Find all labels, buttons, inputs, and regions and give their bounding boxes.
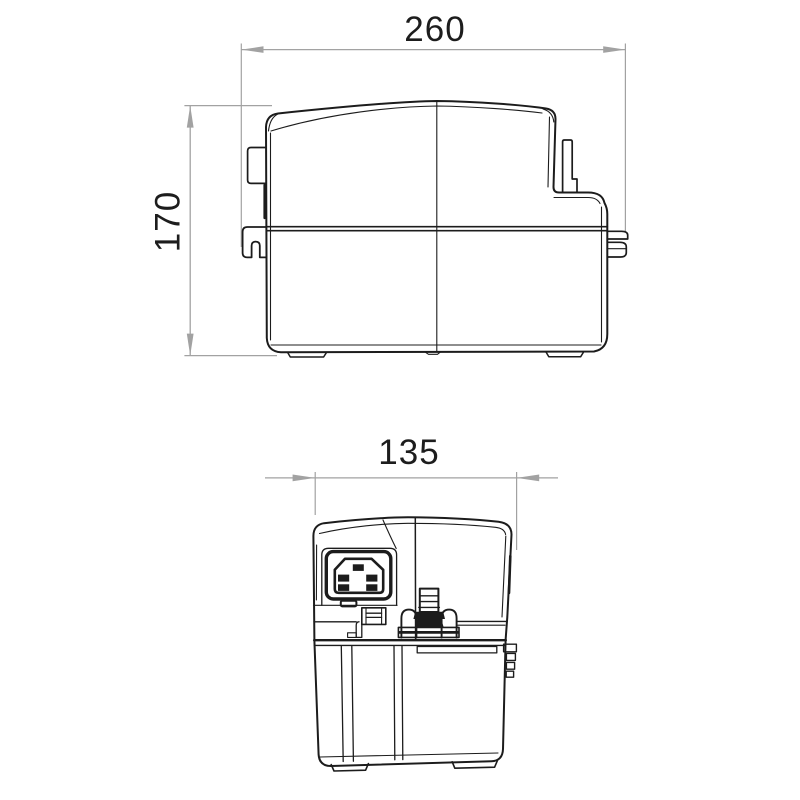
shelf-inner-line	[554, 198, 600, 204]
arrow-right-icon	[293, 475, 316, 482]
power-inlet-panel	[314, 548, 397, 606]
left-hook-clip	[243, 227, 266, 257]
right-clip-upper	[607, 231, 627, 239]
latch-rib-lines	[366, 613, 382, 617]
iec-pin	[366, 584, 377, 591]
clip-tooth	[506, 662, 514, 669]
front-latch	[348, 608, 386, 638]
spout-rib-lines	[419, 596, 440, 608]
arrow-left-icon	[517, 475, 540, 482]
arrow-right-icon	[603, 46, 625, 53]
technical-drawing-canvas: 260 170	[0, 0, 800, 800]
step-inner-line	[548, 117, 550, 187]
tank-detail-lines	[320, 646, 498, 762]
dimension-height-170: 170	[149, 106, 278, 356]
latch-body	[362, 608, 386, 625]
right-edge-accent	[509, 556, 510, 593]
front-body	[243, 101, 628, 357]
tank-edge-line	[352, 646, 354, 761]
right-inner-line	[502, 536, 506, 617]
tank-edge-line	[341, 646, 343, 762]
dimension-depth-label: 135	[378, 433, 439, 472]
rear-cable-tab	[563, 140, 577, 192]
side-body	[313, 517, 516, 771]
tank-edge-line	[402, 646, 403, 760]
front-view: 260 170	[149, 10, 628, 357]
foot-right	[546, 352, 584, 357]
dimensional-drawing: 260 170	[0, 0, 800, 800]
iec-pin	[338, 584, 349, 591]
clip-tooth	[506, 653, 515, 660]
iec-pin	[366, 575, 377, 582]
discharge-spout	[398, 589, 459, 638]
iec-pin	[338, 575, 349, 582]
side-view: 135	[265, 433, 558, 771]
latch-side-lines	[366, 608, 382, 625]
tank-edge-line	[394, 646, 395, 760]
inlet-panel-outline	[322, 548, 397, 605]
dimension-depth-135: 135	[265, 433, 558, 550]
dimension-width-label: 260	[404, 10, 465, 49]
inlet-slot	[341, 601, 357, 607]
top-inner-line	[320, 523, 506, 534]
spout-stub	[420, 589, 439, 612]
iec-pin-earth	[353, 564, 364, 571]
dimension-width-260: 260	[241, 10, 625, 247]
tank-bottom-inner-line	[320, 753, 498, 757]
latch-foot	[348, 633, 357, 638]
arrow-up-icon	[187, 106, 194, 128]
right-clip-lower	[607, 242, 626, 257]
spout-valve-body	[413, 612, 445, 627]
dimension-height-label: 170	[149, 191, 188, 252]
left-tab	[248, 148, 266, 184]
arrow-down-icon	[187, 334, 194, 356]
arrow-left-icon	[241, 46, 263, 53]
latch-step	[356, 622, 362, 638]
clip-tooth	[506, 671, 513, 677]
handle-recess	[417, 647, 497, 653]
